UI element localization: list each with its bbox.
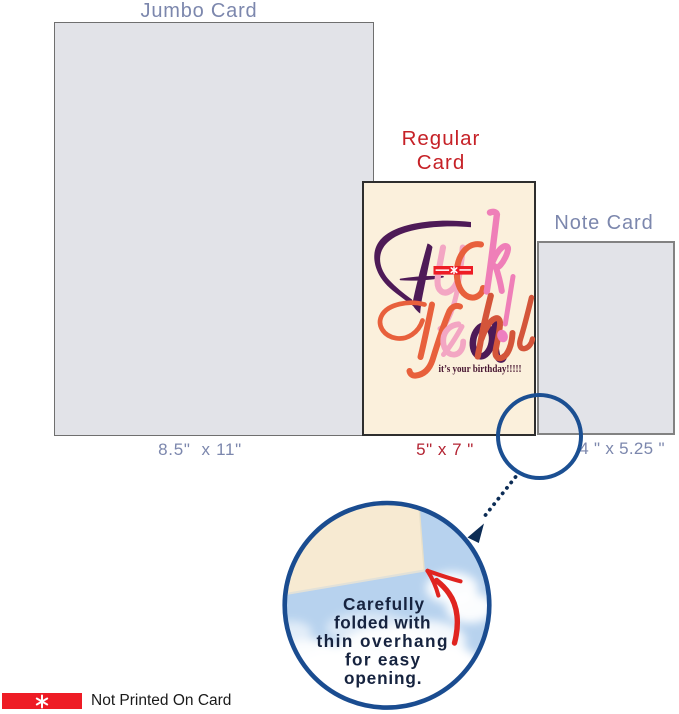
svg-text:folded with: folded with [334,613,431,633]
svg-text:opening.: opening. [344,668,422,688]
svg-text:thin overhang: thin overhang [317,631,448,651]
svg-text:for easy: for easy [345,650,420,670]
svg-text:Carefully: Carefully [343,594,424,614]
svg-text:it’s your birthday!!!!!: it’s your birthday!!!!! [439,363,522,375]
